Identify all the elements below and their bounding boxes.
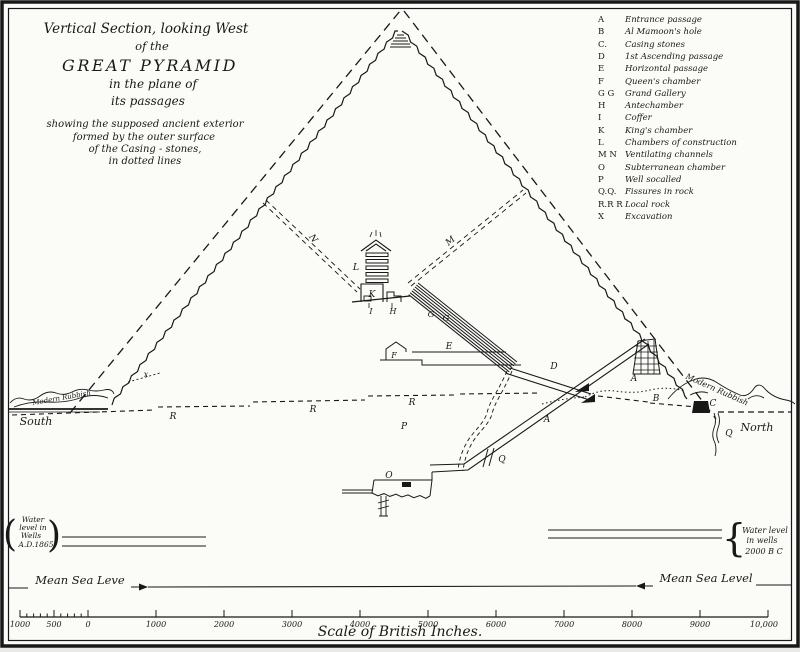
diagram-labels: A A B C D E F G G H I K L M N O P Q Q R … (20, 232, 774, 481)
label-rubbish-north: Modern Rubbish (683, 371, 749, 407)
label-B: B (652, 394, 660, 404)
title-sub1: showing the supposed ancient exterior (47, 119, 245, 130)
title-line1: Vertical Section, looking West (44, 21, 249, 37)
legend-key: G G (598, 89, 614, 99)
title-block: Vertical Section, looking West of the GR… (44, 21, 249, 167)
legend-label: Excavation (624, 212, 672, 222)
legend-label: Horizontal passage (624, 64, 708, 74)
water-line-1865 (62, 537, 206, 546)
label-H: H (389, 307, 398, 316)
legend-key: F (598, 77, 604, 87)
label-C: C (710, 399, 717, 409)
scale-ticks (20, 610, 768, 617)
legend-key: M N (598, 150, 617, 160)
ascending-passage-D (507, 368, 592, 400)
legend-label: Antechamber (624, 101, 684, 111)
fissure-Q-north (713, 413, 720, 456)
water-line-2000bc (548, 530, 722, 538)
label-X: x (144, 370, 149, 379)
fissure-Q-on-passage (483, 448, 494, 467)
title-sub2: formed by the outer surface (72, 132, 215, 143)
label-Q2: Q (725, 429, 733, 439)
label-D: D (549, 362, 557, 372)
scale-label: 1000 (10, 620, 30, 629)
legend-label: Ventilating channels (625, 150, 714, 160)
label-L: L (352, 262, 359, 273)
gable-roof (361, 240, 391, 251)
legend-label: Chambers of construction (625, 138, 737, 148)
legend-label: Entrance passage (624, 15, 702, 25)
label-R2: R (309, 405, 317, 415)
water-levels: ( ) { Water level in Wells A.D.1865 Wate… (3, 514, 788, 560)
scale-label: 7000 (554, 620, 574, 629)
scale-label: 10,000 (750, 620, 778, 629)
legend-key: P (598, 175, 604, 185)
construction-chambers-L (366, 253, 388, 283)
granite-plug-upper (575, 383, 589, 392)
scale-bar: 1000 500 0 1000 2000 3000 4000 5000 6000… (10, 610, 778, 640)
legend-label: Coffer (625, 113, 653, 123)
legend-key: O (598, 163, 605, 173)
ventilating-channel-M (408, 190, 526, 286)
label-O: O (385, 471, 393, 481)
label-P: P (400, 422, 408, 432)
scale-label: 8000 (622, 620, 642, 629)
label-G1: G (428, 310, 435, 320)
pyramid-section-diagram: Vertical Section, looking West of the GR… (0, 0, 800, 648)
title-line5: its passages (111, 94, 185, 108)
water-left-l3: Wells (21, 531, 41, 540)
gable-ticks (370, 230, 381, 237)
legend-label: Local rock (624, 200, 670, 210)
legend-key: R.R R (598, 200, 623, 210)
label-M: M (443, 234, 458, 249)
label-K: K (368, 290, 377, 300)
legend-label: King's chamber (624, 126, 693, 136)
pit-shaft (378, 496, 389, 516)
legend-key: I (598, 113, 601, 123)
sea-level-label-right: Mean Sea Level (658, 571, 752, 585)
ground-and-rock (9, 339, 795, 456)
water-left-l4: A.D.1865 (17, 540, 53, 549)
title-line4: in the plane of (109, 77, 199, 91)
scale-label: 0 (85, 620, 90, 629)
chamber-left-ledge (342, 490, 372, 493)
title-sub4: in dotted lines (109, 156, 182, 167)
label-A: A (630, 374, 638, 384)
label-A2: A (543, 415, 551, 425)
chamber-block (402, 482, 411, 487)
bracket-right: { (722, 516, 746, 560)
legend-label: Fissures in rock (624, 187, 694, 197)
ventilating-channel-N (263, 200, 360, 292)
title-line3: GREAT PYRAMID (62, 56, 238, 75)
label-north: North (739, 421, 773, 434)
scale-label: 6000 (486, 620, 506, 629)
sea-level: Mean Sea Leve Mean Sea Level (9, 571, 791, 591)
legend-label: Well socalled (625, 175, 682, 185)
al-mamoon-hole-B (542, 388, 684, 404)
label-rubbish-south: Modern Rubbish (31, 389, 92, 407)
scale-caption: Scale of British Inches. (318, 624, 483, 640)
sea-level-label-left: Mean Sea Leve (34, 573, 125, 587)
label-G2: G (443, 314, 450, 324)
legend-label: Grand Gallery (625, 89, 686, 99)
legend-label: Queen's chamber (625, 77, 701, 87)
passages (263, 190, 684, 472)
legend-label: Subterranean chamber (625, 163, 726, 173)
legend-label: Casing stones (625, 40, 686, 50)
arrow-left-icon (636, 583, 645, 590)
bracket-close-left: ) (47, 515, 61, 556)
entrance-passage-A (430, 339, 649, 472)
grand-gallery-G (409, 283, 517, 374)
casing-stone-block-C (692, 401, 710, 413)
sea-level-lines (9, 585, 791, 588)
water-right-l3: 2000 B C (744, 547, 782, 556)
legend-key: B (598, 27, 604, 37)
title-line2: of the (135, 39, 169, 53)
legend: A Entrance passage B Al Mamoon's hole C.… (597, 15, 737, 222)
scale-label: 500 (46, 620, 61, 629)
scale-label: 9000 (690, 620, 710, 629)
label-E: E (445, 342, 453, 352)
legend-label: Al Mamoon's hole (624, 27, 702, 37)
legend-key: L (598, 138, 604, 148)
label-south: South (20, 415, 53, 428)
scale-label: 2000 (213, 620, 234, 629)
label-I: I (368, 307, 373, 316)
label-F: F (390, 351, 397, 360)
legend-key: E (598, 64, 604, 74)
water-right-l1: Water level (742, 526, 788, 535)
scale-label: 1000 (146, 620, 166, 629)
label-Q1: Q (498, 455, 506, 465)
legend-key: X (598, 212, 605, 222)
water-right-l2: in wells (746, 536, 777, 545)
title-sub3: of the Casing - stones, (89, 144, 202, 155)
bracket-open-left: ( (3, 514, 17, 555)
legend-key: H (598, 101, 605, 111)
legend-label: 1st Ascending passage (625, 52, 723, 62)
legend-key: A (597, 15, 605, 25)
scale-label: 3000 (282, 620, 302, 629)
engraving-page: Vertical Section, looking West of the GR… (0, 0, 800, 648)
label-R1: R (169, 412, 177, 422)
legend-key: D (598, 52, 605, 62)
arrow-right-icon (139, 584, 148, 591)
legend-key: K (598, 126, 605, 136)
legend-key: Q.Q. (598, 187, 617, 197)
label-R3: R (408, 398, 416, 408)
legend-key: C. (598, 40, 607, 50)
